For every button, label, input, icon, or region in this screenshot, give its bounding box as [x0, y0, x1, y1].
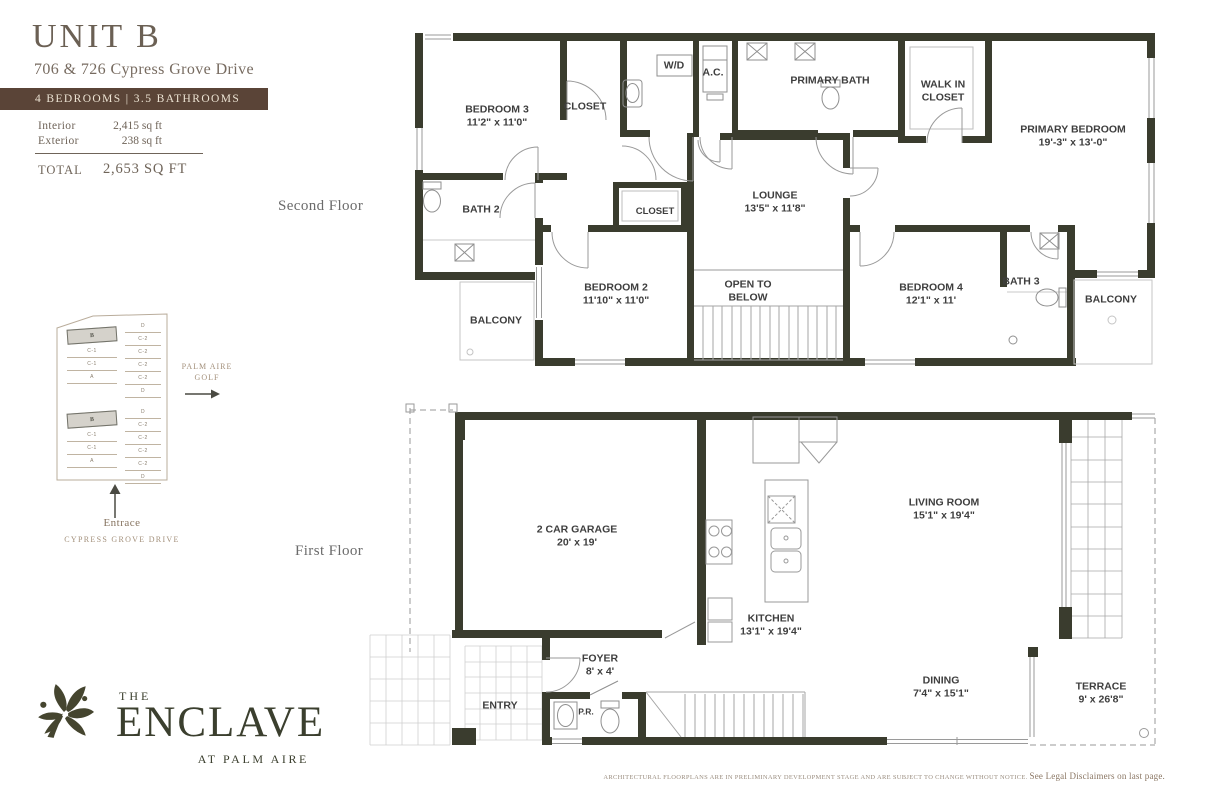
site-unit: C-1 [67, 442, 117, 455]
room-label-closet-top: CLOSET [564, 100, 607, 113]
room-label-entry: ENTRY [482, 699, 517, 712]
room-label-primary-bedroom: PRIMARY BEDROOM19'-3" x 13'-0" [1020, 124, 1126, 151]
site-cluster-top-left: B C-1 C-1 A [67, 328, 117, 384]
site-unit: D [125, 406, 161, 419]
room-label-garage: 2 CAR GARAGE20' x 19' [537, 524, 618, 551]
site-unit: C-2 [125, 359, 161, 372]
site-unit: C-2 [125, 346, 161, 359]
room-label-walk-in-closet: WALK IN CLOSET [914, 79, 972, 106]
site-unit: C-2 [125, 445, 161, 458]
logo-word-enclave: ENCLAVE [116, 698, 325, 747]
room-label-bedroom2: BEDROOM 211'10" x 11'0" [583, 282, 649, 309]
second-floor-label: Second Floor [278, 198, 363, 215]
disclaimer-small-text: ARCHITECTURAL FLOORPLANS ARE IN PRELIMIN… [603, 774, 1029, 781]
room-label-powder-room: P.R. [578, 707, 593, 718]
stairs [646, 692, 805, 737]
enclave-botanical-logo-icon [33, 680, 95, 742]
entrance-label: Entrace [92, 517, 152, 529]
site-unit: C-2 [125, 372, 161, 385]
street-label: CYPRESS GROVE DRIVE [52, 535, 192, 544]
pergola-grid [1071, 415, 1122, 638]
kitchen-fixtures [665, 417, 837, 642]
site-unit: D [125, 471, 161, 484]
site-unit: C-1 [67, 345, 117, 358]
legal-disclaimer: ARCHITECTURAL FLOORPLANS ARE IN PRELIMIN… [600, 766, 1165, 784]
room-label-balcony-right: BALCONY [1085, 293, 1137, 306]
site-unit: A [67, 371, 117, 384]
first-floor-plan: 2 CAR GARAGE20' x 19' LIVING ROOM15'1" x… [365, 400, 1160, 750]
address-subtitle: 706 & 726 Cypress Grove Drive [34, 61, 254, 79]
site-unit: C-2 [125, 432, 161, 445]
exterior-value: 238 sq ft [100, 135, 162, 147]
page-title: UNIT B [32, 18, 162, 56]
disclaimer-emphasis-text: See Legal Disclaimers on last page. [1030, 771, 1165, 781]
site-unit: C-2 [125, 458, 161, 471]
golf-label: PALM AIREGOLF [175, 361, 239, 383]
first-floor-label: First Floor [295, 543, 363, 560]
total-label: TOTAL [38, 163, 83, 178]
site-cluster-bottom-right: D C-2 C-2 C-2 C-2 D [125, 406, 161, 484]
room-label-primary-bath: PRIMARY BATH [790, 74, 869, 87]
room-label-dining: DINING7'4" x 15'1" [913, 675, 969, 702]
room-label-balcony-left: BALCONY [470, 314, 522, 327]
interior-label: Interior [38, 120, 76, 132]
room-label-open-to-below: OPEN TO BELOW [715, 279, 781, 306]
room-label-closet-mid: CLOSET [636, 206, 675, 218]
room-label-lounge: LOUNGE13'5" x 11'8" [744, 190, 805, 217]
balconies [460, 280, 1152, 364]
dashed-line-markers [406, 404, 1149, 738]
site-unit: C-2 [125, 333, 161, 346]
site-unit: C-1 [67, 358, 117, 371]
site-unit: C-2 [125, 419, 161, 432]
room-label-bedroom4: BEDROOM 412'1" x 11' [899, 282, 963, 309]
golf-arrow-icon [185, 388, 221, 400]
second-floor-plan: BEDROOM 311'2" x 11'0" CLOSET W/D A.C. P… [410, 30, 1160, 375]
floorplan-sheet: UNIT B 706 & 726 Cypress Grove Drive 4 B… [0, 0, 1224, 792]
first-floor-drawing [365, 400, 1160, 750]
room-label-bath2: BATH 2 [462, 203, 499, 216]
site-unit: C-1 [67, 429, 117, 442]
room-label-bath3: BATH 3 [1002, 275, 1039, 288]
stats-divider [35, 153, 203, 154]
site-unit: D [125, 320, 161, 333]
room-label-living-room: LIVING ROOM15'1" x 19'4" [909, 497, 980, 524]
site-unit: A [67, 455, 117, 468]
room-label-foyer: FOYER8' x 4' [582, 653, 618, 680]
room-label-ac: A.C. [703, 66, 724, 79]
total-value: 2,653 SQ FT [103, 161, 187, 178]
exterior-label: Exterior [38, 135, 79, 147]
doors [546, 658, 580, 692]
room-label-kitchen: KITCHEN13'1" x 19'4" [740, 613, 802, 640]
site-unit: B [67, 326, 118, 344]
site-cluster-top-right: D C-2 C-2 C-2 C-2 D [125, 320, 161, 398]
room-label-bedroom3: BEDROOM 311'2" x 11'0" [465, 104, 529, 131]
room-label-wd: W/D [664, 59, 684, 72]
logo-tagline: AT PALM AIRE [116, 752, 309, 767]
room-label-terrace: TERRACE9' x 26'8" [1076, 681, 1127, 708]
entrance-arrow-icon [108, 484, 122, 518]
site-cluster-bottom-left: B C-1 C-1 A [67, 412, 117, 468]
site-unit: D [125, 385, 161, 398]
interior-value: 2,415 sq ft [100, 120, 162, 132]
bed-bath-banner: 4 BEDROOMS | 3.5 BATHROOMS [0, 88, 268, 110]
site-unit: B [67, 410, 118, 428]
